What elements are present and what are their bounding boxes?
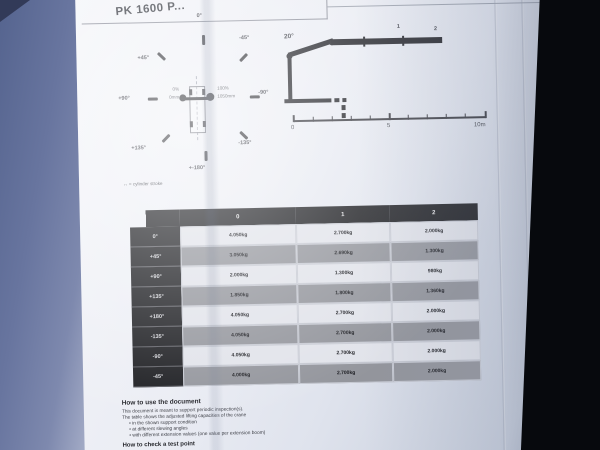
angle-tick-0 — [202, 35, 205, 45]
capacity-cell: 4.050kg — [183, 344, 299, 366]
boom-pivot-dot — [286, 53, 292, 59]
capacity-cell: 2.000kg — [392, 320, 480, 342]
capacity-cell: 2.700kg — [298, 302, 392, 324]
scale-minor-tick — [332, 116, 333, 121]
extension-label-1: 1 — [397, 24, 400, 30]
angle-label-neg90: -90° — [258, 90, 268, 96]
extension-joint-tick — [363, 37, 365, 47]
load-capacity-table: 0 1 2 0° 4.050kg 2.700kg 2.000kg +45° 3.… — [130, 203, 482, 387]
scale-minor-tick — [313, 117, 314, 122]
column-header-1: 1 — [296, 205, 390, 224]
truck-top-view — [189, 86, 206, 133]
angle-label-neg135: -135° — [238, 140, 251, 146]
extension-joint-tick — [402, 36, 404, 46]
outrigger-dash — [341, 105, 345, 110]
capacity-cell: 2.700kg — [299, 362, 393, 384]
column-header-2: 2 — [390, 203, 478, 222]
scale-minor-tick — [427, 114, 428, 119]
row-angle-label: +180° — [132, 306, 182, 327]
truck-wheel — [190, 121, 193, 127]
row-angle-label: -90° — [133, 346, 183, 367]
capacity-cell: 2.700kg — [298, 322, 392, 344]
boom-angle-label: 20° — [284, 33, 294, 41]
capacity-cell: 2.000kg — [390, 220, 478, 242]
angle-label-pos45: +45° — [137, 55, 149, 61]
stroke-min-percent: 0% — [167, 87, 179, 92]
scale-label-0: 0 — [291, 125, 294, 131]
angle-tick-pos90 — [148, 97, 158, 100]
capacity-cell: 1.850kg — [181, 284, 297, 306]
capacity-cell: 4.050kg — [182, 304, 298, 326]
scale-minor-tick — [408, 115, 409, 120]
capacity-cell: 1.300kg — [297, 262, 391, 284]
stroke-max-mm: 1050mm — [217, 93, 235, 98]
angle-label-pos135: +135° — [131, 145, 146, 151]
stroke-max-percent: 100% — [217, 85, 229, 90]
truck-wheel — [202, 89, 205, 95]
capacity-cell: 4.050kg — [182, 324, 298, 346]
capacity-cell: 1.300kg — [390, 240, 478, 262]
capacity-cell: 3.050kg — [180, 244, 296, 266]
scale-minor-tick — [465, 114, 466, 119]
row-angle-label: +45° — [130, 247, 180, 268]
angle-label-180: +-180° — [189, 165, 206, 171]
row-angle-label: +90° — [131, 267, 181, 288]
crane-base-dash — [334, 98, 339, 102]
capacity-cell: 2.690kg — [296, 242, 390, 264]
angle-label-pos90: +90° — [118, 96, 130, 102]
capacity-cell: 2.700kg — [298, 342, 392, 364]
capacity-cell: 1.360kg — [391, 280, 479, 302]
scale-major-tick — [389, 113, 391, 120]
crane-base-dash — [342, 98, 346, 102]
photo-of-load-chart-document: PK 1600 P... 0° -45° -90° -135° +-180° +… — [0, 0, 600, 450]
outrigger-dash — [342, 113, 346, 118]
capacity-cell: 2.700kg — [296, 222, 390, 244]
angle-label-neg45: -45° — [239, 35, 249, 41]
row-angle-label: -45° — [133, 366, 183, 387]
header-corner-cell — [130, 210, 180, 228]
scale-minor-tick — [351, 116, 352, 121]
scale-label-10m: 10m — [474, 122, 486, 128]
angle-label-0: 0° — [197, 13, 202, 19]
scale-minor-tick — [370, 115, 371, 120]
capacity-cell: 2.000kg — [392, 300, 480, 322]
scale-label-5: 5 — [387, 123, 390, 129]
capacity-cell: 980kg — [391, 260, 479, 282]
scale-major-tick — [293, 115, 295, 122]
row-angle-label: +135° — [131, 287, 181, 308]
capacity-cell: 4.050kg — [180, 224, 296, 246]
capacity-cell: 2.000kg — [181, 264, 297, 286]
extension-label-2: 2 — [434, 26, 437, 32]
stroke-min-mm: 0mm — [161, 95, 179, 100]
truck-wheel — [189, 89, 192, 95]
capacity-cell: 4.000kg — [183, 364, 299, 386]
angle-tick-180 — [204, 151, 207, 161]
cylinder-stroke-legend: ↔ = cylinder stroke — [123, 181, 163, 187]
truck-wheel — [203, 121, 206, 127]
capacity-cell: 2.000kg — [393, 360, 481, 382]
capacity-cell: 2.000kg — [392, 340, 480, 362]
row-angle-label: -135° — [132, 326, 182, 347]
scale-major-tick — [485, 111, 487, 118]
scale-minor-tick — [446, 114, 447, 119]
row-angle-label: 0° — [130, 227, 180, 248]
instructions-section: How to use the document This document is… — [122, 393, 453, 449]
capacity-cell: 1.800kg — [297, 282, 391, 304]
page-tilt-wrapper: PK 1600 P... 0° -45° -90° -135° +-180° +… — [0, 0, 600, 450]
